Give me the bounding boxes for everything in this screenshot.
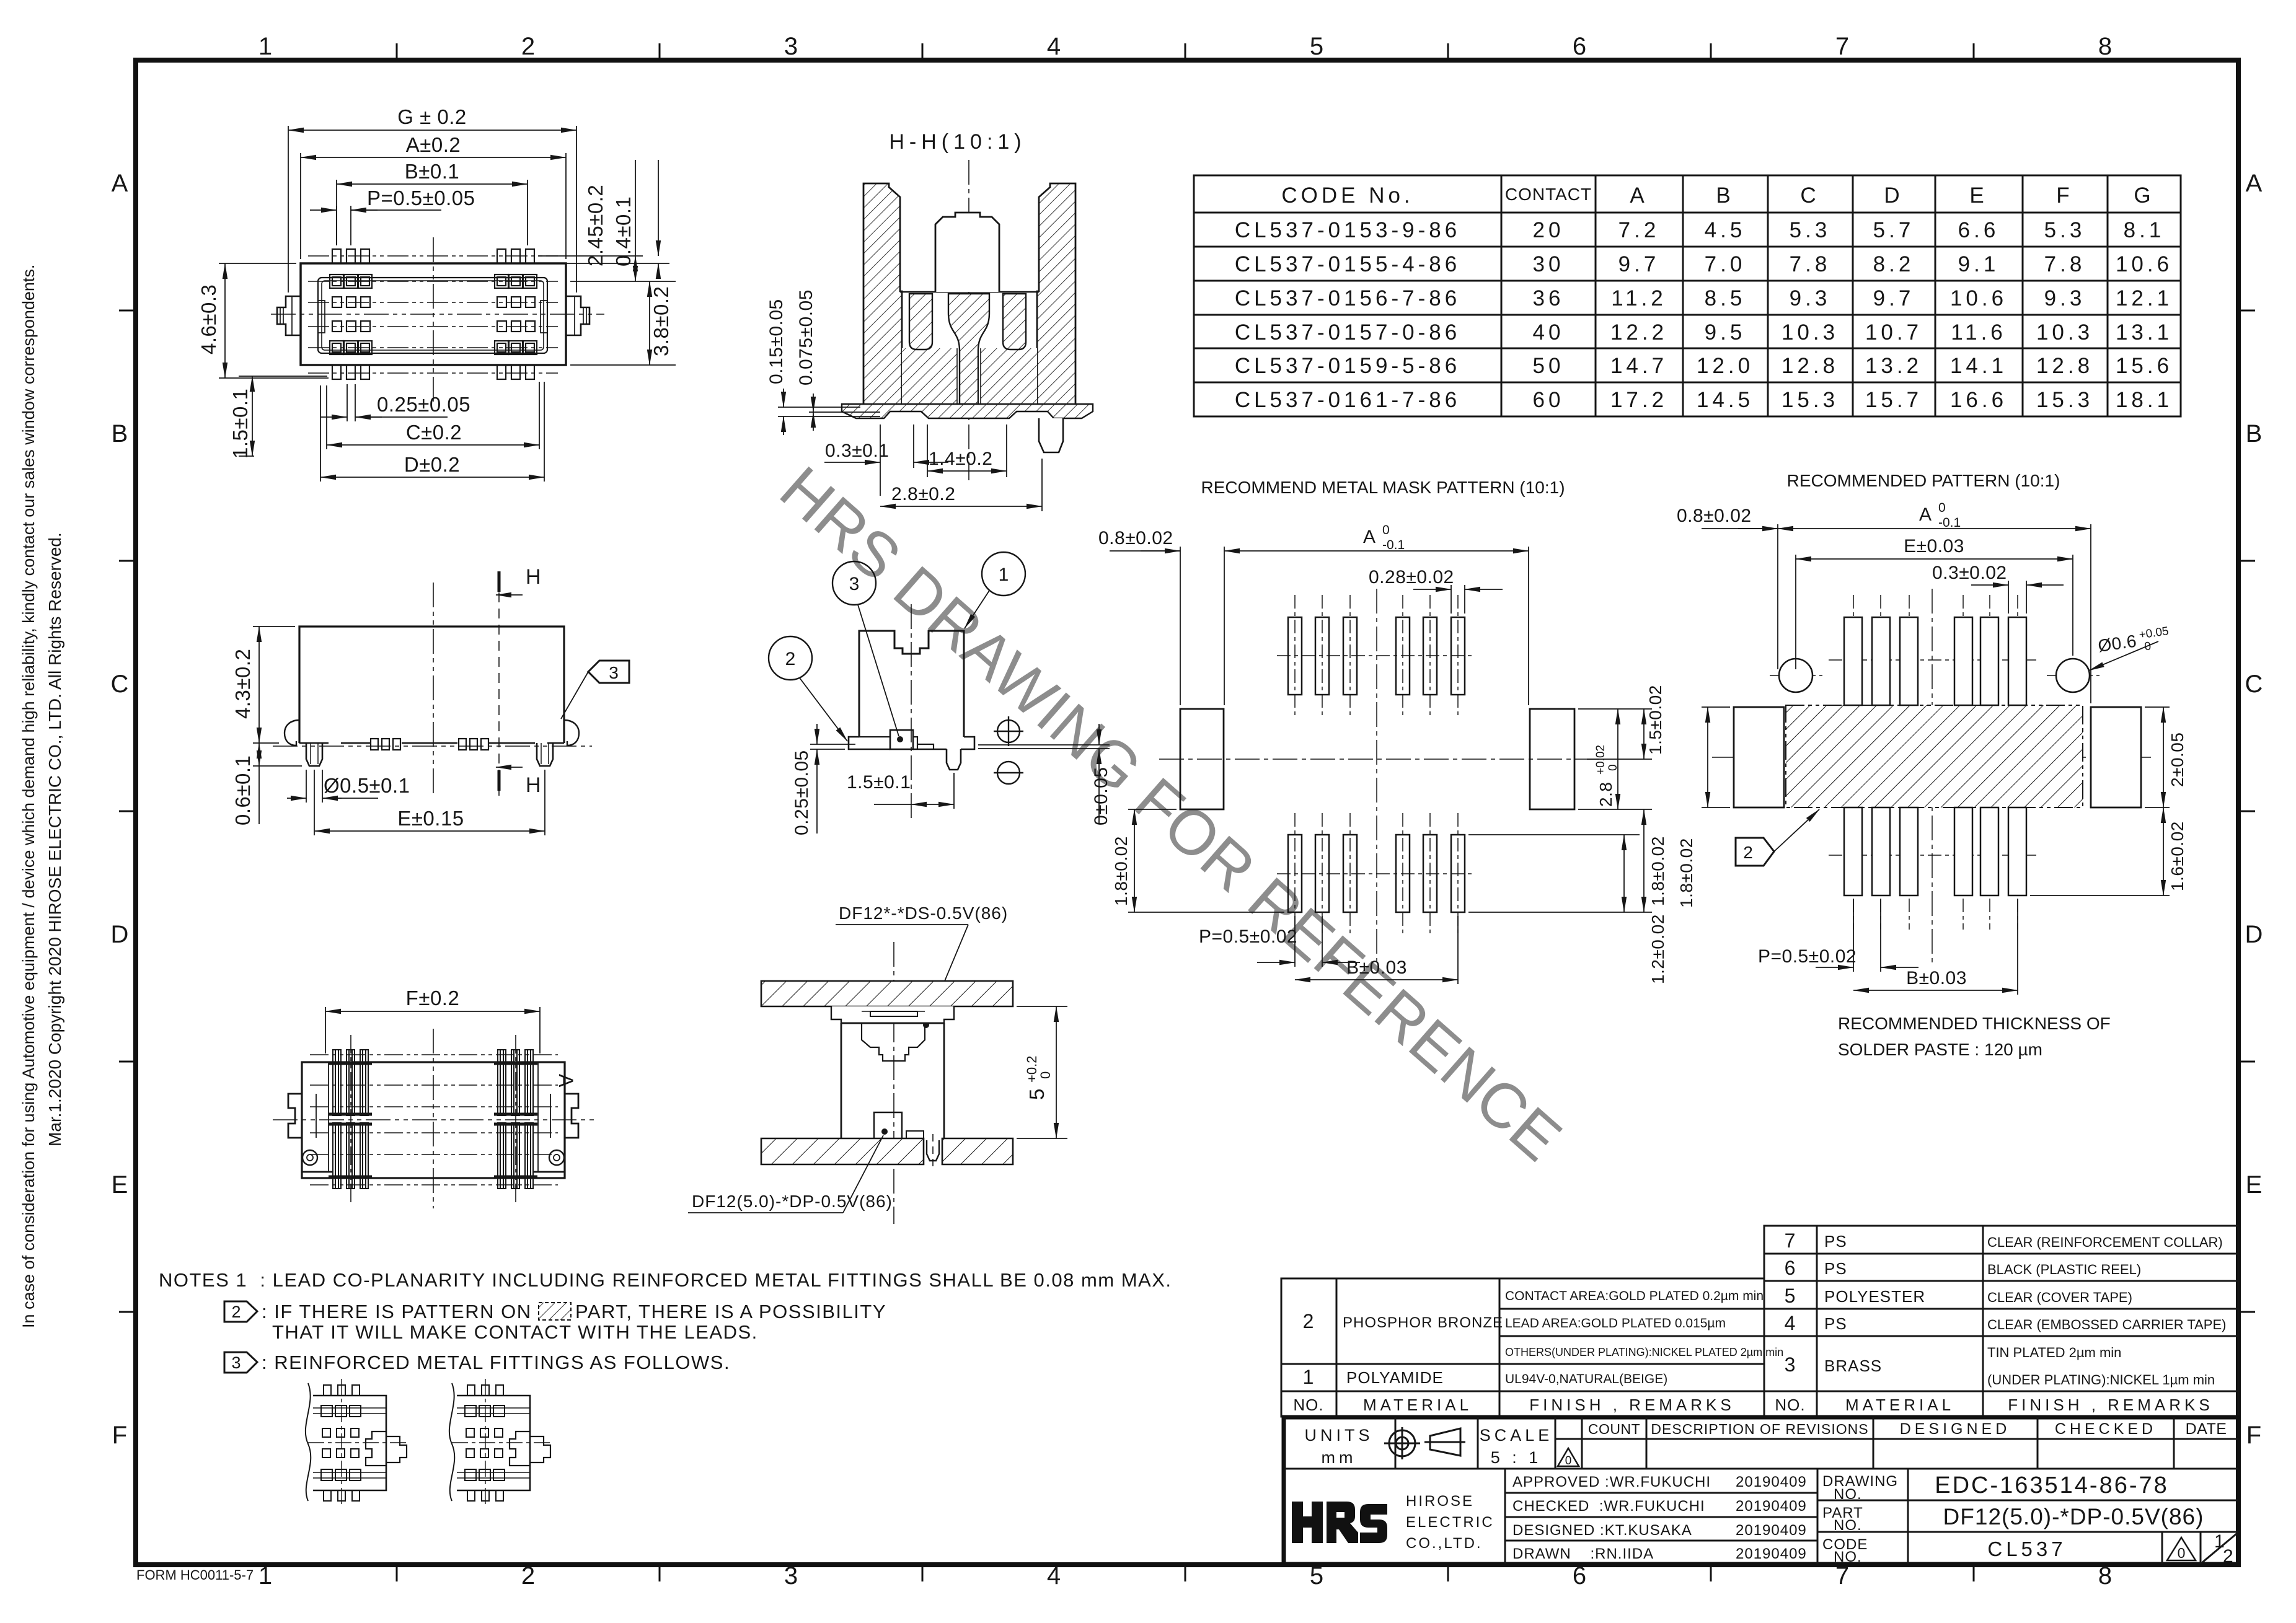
svg-text:NO.: NO. bbox=[1775, 1396, 1805, 1414]
svg-text:4.5: 4.5 bbox=[1705, 218, 1746, 242]
svg-text:2: 2 bbox=[2223, 1546, 2233, 1567]
svg-text:0.075±0.05: 0.075±0.05 bbox=[796, 289, 816, 385]
svg-text:DESCRIPTION OF REVISIONS: DESCRIPTION OF REVISIONS bbox=[1651, 1421, 1868, 1437]
svg-text:F: F bbox=[2246, 1422, 2261, 1449]
svg-text:CL537: CL537 bbox=[1987, 1537, 2066, 1560]
svg-text:0: 0 bbox=[2178, 1545, 2186, 1561]
svg-text:1: 1 bbox=[258, 1562, 272, 1590]
svg-text:6.6: 6.6 bbox=[1958, 218, 2000, 242]
svg-text:B: B bbox=[112, 420, 128, 447]
svg-text:6: 6 bbox=[1785, 1257, 1796, 1279]
svg-text:4.3±0.2: 4.3±0.2 bbox=[231, 649, 254, 719]
svg-text:7: 7 bbox=[1785, 1229, 1796, 1252]
svg-text:CODE No.: CODE No. bbox=[1281, 183, 1413, 208]
svg-text:D: D bbox=[111, 921, 129, 948]
svg-text:2: 2 bbox=[1743, 843, 1753, 862]
svg-text:FINISH , REMARKS: FINISH , REMARKS bbox=[2008, 1396, 2213, 1414]
svg-text:6: 6 bbox=[1573, 33, 1586, 60]
svg-text:DF12(5.0)-*DP-0.5V(86): DF12(5.0)-*DP-0.5V(86) bbox=[692, 1192, 893, 1211]
svg-text:C: C bbox=[1800, 183, 1819, 208]
svg-text:DESIGNED :KT.KUSAKA: DESIGNED :KT.KUSAKA bbox=[1512, 1522, 1692, 1539]
svg-text:CLEAR (EMBOSSED CARRIER TAPE): CLEAR (EMBOSSED CARRIER TAPE) bbox=[1987, 1317, 2226, 1332]
svg-text:Mar.1.2020 Copyright 2020 HIRO: Mar.1.2020 Copyright 2020 HIROSE ELECTRI… bbox=[45, 532, 64, 1146]
svg-text:15.3: 15.3 bbox=[1782, 388, 1839, 412]
svg-text:2.8: 2.8 bbox=[1596, 782, 1615, 807]
svg-text:A: A bbox=[1363, 527, 1376, 547]
svg-text:1.8±0.02: 1.8±0.02 bbox=[1111, 836, 1131, 906]
svg-text:SCALE: SCALE bbox=[1480, 1426, 1553, 1445]
svg-text:9.5: 9.5 bbox=[1705, 320, 1746, 345]
svg-text:NO.: NO. bbox=[1834, 1517, 1862, 1534]
svg-text:ELECTRIC: ELECTRIC bbox=[1406, 1514, 1495, 1531]
svg-text:LEAD AREA:GOLD PLATED 0.015µm: LEAD AREA:GOLD PLATED 0.015µm bbox=[1505, 1316, 1726, 1331]
svg-text:14.5: 14.5 bbox=[1697, 388, 1754, 412]
svg-text:4: 4 bbox=[1785, 1312, 1796, 1334]
svg-text:1.4±0.2: 1.4±0.2 bbox=[929, 449, 992, 469]
svg-text:(UNDER PLATING):NICKEL 1µm min: (UNDER PLATING):NICKEL 1µm min bbox=[1987, 1372, 2215, 1388]
svg-text:2: 2 bbox=[1303, 1310, 1315, 1332]
svg-text:BRASS: BRASS bbox=[1824, 1357, 1882, 1375]
svg-text:CL537-0155-4-86: CL537-0155-4-86 bbox=[1235, 252, 1460, 276]
svg-text:CL537-0156-7-86: CL537-0156-7-86 bbox=[1235, 286, 1460, 310]
svg-text:CHECKED: CHECKED bbox=[2055, 1420, 2157, 1438]
svg-text:9.7: 9.7 bbox=[1873, 286, 1915, 310]
svg-text:PHOSPHOR BRONZE: PHOSPHOR BRONZE bbox=[1343, 1314, 1503, 1331]
svg-text:CONTACT: CONTACT bbox=[1505, 185, 1592, 204]
svg-text:B: B bbox=[2246, 420, 2263, 447]
svg-text:D: D bbox=[2245, 921, 2263, 948]
svg-text:1.8±0.02: 1.8±0.02 bbox=[1677, 838, 1696, 908]
svg-text:F: F bbox=[112, 1422, 127, 1449]
svg-text:12.2: 12.2 bbox=[1610, 320, 1667, 345]
svg-text:13.1: 13.1 bbox=[2116, 320, 2173, 345]
svg-text:PS: PS bbox=[1824, 1259, 1847, 1278]
svg-text:0.8±0.02: 0.8±0.02 bbox=[1098, 528, 1173, 548]
svg-text:20190409: 20190409 bbox=[1736, 1498, 1807, 1515]
svg-text:7: 7 bbox=[1835, 1562, 1849, 1590]
svg-text:E: E bbox=[2246, 1171, 2263, 1199]
svg-text:3: 3 bbox=[1785, 1353, 1796, 1376]
svg-text:G ± 0.2: G ± 0.2 bbox=[397, 105, 467, 128]
svg-text:H-H(10:1): H-H(10:1) bbox=[889, 130, 1026, 154]
svg-text:UL94V-0,NATURAL(BEIGE): UL94V-0,NATURAL(BEIGE) bbox=[1505, 1372, 1667, 1386]
svg-text:9.3: 9.3 bbox=[1790, 286, 1831, 310]
svg-text:0.25±0.05: 0.25±0.05 bbox=[792, 750, 812, 835]
svg-text:A: A bbox=[2246, 170, 2263, 197]
svg-text:DRAWN :RN.IIDA: DRAWN :RN.IIDA bbox=[1512, 1546, 1654, 1562]
svg-text:5.3: 5.3 bbox=[2044, 218, 2086, 242]
svg-text:20190409: 20190409 bbox=[1736, 1522, 1807, 1539]
svg-text:0.6±0.1: 0.6±0.1 bbox=[231, 755, 254, 825]
svg-text:10.6: 10.6 bbox=[1950, 286, 2007, 310]
svg-text:15.3: 15.3 bbox=[2036, 388, 2093, 412]
svg-text:1.2±0.02: 1.2±0.02 bbox=[1648, 914, 1667, 984]
svg-text:FORM HC0011-5-7: FORM HC0011-5-7 bbox=[136, 1567, 254, 1583]
svg-text:15.6: 15.6 bbox=[2116, 354, 2173, 378]
svg-text:mm: mm bbox=[1322, 1448, 1357, 1467]
svg-text:12.0: 12.0 bbox=[1697, 354, 1754, 378]
svg-text:9.3: 9.3 bbox=[2044, 286, 2086, 310]
svg-text:RECOMMEND METAL MASK PATTERN (: RECOMMEND METAL MASK PATTERN (10:1) bbox=[1201, 478, 1565, 497]
svg-text:2: 2 bbox=[521, 33, 535, 60]
svg-text:5.3: 5.3 bbox=[1790, 218, 1831, 242]
svg-text:11.2: 11.2 bbox=[1611, 286, 1667, 310]
svg-text:In case of consideration for u: In case of consideration for using Autom… bbox=[19, 265, 38, 1328]
svg-text:PS: PS bbox=[1824, 1314, 1847, 1333]
svg-text:MATERIAL: MATERIAL bbox=[1845, 1396, 1954, 1414]
svg-text:P=0.5±0.02: P=0.5±0.02 bbox=[1199, 926, 1297, 947]
svg-text:NO.: NO. bbox=[1293, 1396, 1323, 1414]
svg-text:C: C bbox=[2245, 671, 2263, 698]
svg-text:DESIGNED: DESIGNED bbox=[1900, 1420, 2011, 1438]
svg-text:A: A bbox=[1919, 504, 1932, 525]
svg-text:4.6±0.3: 4.6±0.3 bbox=[197, 284, 220, 354]
svg-text:2.45±0.2: 2.45±0.2 bbox=[584, 185, 607, 266]
svg-text:PART, THERE IS A POSSIBILITY: PART, THERE IS A POSSIBILITY bbox=[575, 1301, 886, 1322]
svg-text:5: 5 bbox=[1025, 1088, 1048, 1100]
svg-text:MATERIAL: MATERIAL bbox=[1363, 1396, 1472, 1414]
svg-text:17.2: 17.2 bbox=[1610, 388, 1667, 412]
svg-text:3: 3 bbox=[231, 1353, 241, 1372]
svg-text:HIROSE: HIROSE bbox=[1406, 1493, 1474, 1510]
svg-text:7: 7 bbox=[1835, 33, 1849, 60]
svg-text:THAT IT WILL MAKE CONTACT WITH: THAT IT WILL MAKE CONTACT WITH THE LEADS… bbox=[272, 1321, 758, 1343]
svg-text:C±0.2: C±0.2 bbox=[406, 421, 462, 444]
svg-text:60: 60 bbox=[1533, 388, 1565, 412]
svg-text:40: 40 bbox=[1533, 320, 1565, 345]
svg-text:12.1: 12.1 bbox=[2116, 286, 2173, 310]
svg-text:E: E bbox=[1969, 183, 1987, 208]
svg-text:1.6±0.02: 1.6±0.02 bbox=[2168, 821, 2187, 891]
svg-text:0±0.05: 0±0.05 bbox=[1091, 767, 1111, 825]
svg-text:EDC-163514-86-78: EDC-163514-86-78 bbox=[1935, 1472, 2169, 1498]
svg-text:11.6: 11.6 bbox=[1951, 320, 2007, 345]
svg-text:8: 8 bbox=[2098, 1562, 2112, 1590]
svg-text:7.0: 7.0 bbox=[1705, 252, 1746, 276]
svg-text:B: B bbox=[1716, 183, 1734, 208]
svg-text:3: 3 bbox=[784, 33, 798, 60]
svg-text:1.5±0.1: 1.5±0.1 bbox=[847, 772, 911, 793]
svg-text:2: 2 bbox=[521, 1562, 535, 1590]
svg-text:8.2: 8.2 bbox=[1873, 252, 1915, 276]
svg-text:-0.1: -0.1 bbox=[1938, 516, 1961, 530]
svg-text:3: 3 bbox=[609, 663, 619, 682]
svg-text:8.1: 8.1 bbox=[2124, 218, 2165, 242]
svg-text:P=0.5±0.05: P=0.5±0.05 bbox=[367, 187, 475, 209]
svg-text:5.7: 5.7 bbox=[1873, 218, 1915, 242]
svg-text:12.8: 12.8 bbox=[2036, 354, 2093, 378]
svg-text:TIN PLATED 2µm min: TIN PLATED 2µm min bbox=[1987, 1345, 2121, 1360]
svg-text:1.8±0.02: 1.8±0.02 bbox=[1648, 836, 1667, 906]
svg-text:0.25±0.05: 0.25±0.05 bbox=[377, 393, 470, 416]
svg-text:COUNT: COUNT bbox=[1588, 1421, 1640, 1437]
svg-text:CHECKED :WR.FUKUCHI: CHECKED :WR.FUKUCHI bbox=[1512, 1498, 1705, 1515]
svg-text:E: E bbox=[112, 1171, 128, 1199]
svg-text:50: 50 bbox=[1533, 354, 1565, 378]
svg-text:0.3±0.1: 0.3±0.1 bbox=[825, 441, 889, 461]
svg-text:CO.,LTD.: CO.,LTD. bbox=[1406, 1535, 1483, 1552]
svg-text:NOTES 1 : LEAD CO-PLANARITY I: NOTES 1 : LEAD CO-PLANARITY INCLUDING RE… bbox=[159, 1269, 1172, 1291]
svg-text:0.15±0.05: 0.15±0.05 bbox=[766, 299, 787, 384]
svg-text:D: D bbox=[1884, 183, 1903, 208]
svg-text:B±0.1: B±0.1 bbox=[405, 160, 460, 183]
svg-text:H: H bbox=[526, 565, 541, 589]
svg-text:FINISH , REMARKS: FINISH , REMARKS bbox=[1529, 1396, 1734, 1414]
svg-text:15.7: 15.7 bbox=[1865, 388, 1922, 412]
svg-text:: IF THERE IS PATTERN ON: : IF THERE IS PATTERN ON bbox=[262, 1301, 532, 1322]
svg-text:A: A bbox=[555, 1074, 577, 1088]
svg-text:E±0.03: E±0.03 bbox=[1904, 536, 1964, 556]
svg-text:C: C bbox=[111, 671, 129, 698]
svg-text:36: 36 bbox=[1533, 286, 1565, 310]
svg-text:7.8: 7.8 bbox=[1790, 252, 1831, 276]
svg-text:8.5: 8.5 bbox=[1705, 286, 1746, 310]
svg-text:3.8±0.2: 3.8±0.2 bbox=[650, 286, 673, 356]
svg-text:8: 8 bbox=[2098, 33, 2112, 60]
svg-text:3: 3 bbox=[784, 1562, 798, 1590]
svg-text:0.28±0.02: 0.28±0.02 bbox=[1369, 567, 1454, 587]
svg-text:POLYAMIDE: POLYAMIDE bbox=[1346, 1368, 1444, 1387]
svg-text:4: 4 bbox=[1047, 33, 1061, 60]
svg-text:BLACK (PLASTIC REEL): BLACK (PLASTIC REEL) bbox=[1987, 1262, 2141, 1277]
svg-text:P=0.5±0.02: P=0.5±0.02 bbox=[1758, 946, 1857, 967]
svg-text:1: 1 bbox=[258, 33, 272, 60]
svg-text:6: 6 bbox=[1573, 1562, 1586, 1590]
svg-text:0: 0 bbox=[1938, 501, 1946, 515]
svg-text:5: 5 bbox=[1785, 1285, 1796, 1307]
svg-text:0: 0 bbox=[1382, 523, 1390, 537]
svg-text:CL537-0159-5-86: CL537-0159-5-86 bbox=[1235, 354, 1460, 378]
svg-text:APPROVED :WR.FUKUCHI: APPROVED :WR.FUKUCHI bbox=[1512, 1474, 1711, 1490]
svg-text:NO.: NO. bbox=[1834, 1549, 1862, 1565]
svg-text:RECOMMENDED PATTERN (10:1): RECOMMENDED PATTERN (10:1) bbox=[1787, 471, 2060, 490]
svg-text:CLEAR (COVER TAPE): CLEAR (COVER TAPE) bbox=[1987, 1290, 2132, 1305]
svg-text:POLYESTER: POLYESTER bbox=[1824, 1287, 1925, 1306]
svg-text:0: 0 bbox=[1038, 1071, 1053, 1079]
svg-text:SOLDER PASTE : 120 µm: SOLDER PASTE : 120 µm bbox=[1838, 1040, 2042, 1059]
svg-text:7.2: 7.2 bbox=[1618, 218, 1660, 242]
svg-text:NO.: NO. bbox=[1834, 1486, 1862, 1503]
svg-text:OTHERS(UNDER PLATING):NICKEL P: OTHERS(UNDER PLATING):NICKEL PLATED 2µm … bbox=[1505, 1346, 1783, 1358]
svg-text:14.1: 14.1 bbox=[1950, 354, 2007, 378]
svg-text:1: 1 bbox=[999, 565, 1009, 585]
svg-text:4: 4 bbox=[1047, 1562, 1061, 1590]
svg-text:CL537-0161-7-86: CL537-0161-7-86 bbox=[1235, 388, 1460, 412]
svg-text:B±0.03: B±0.03 bbox=[1346, 957, 1407, 978]
svg-text:20190409: 20190409 bbox=[1736, 1474, 1807, 1490]
svg-text:1: 1 bbox=[1303, 1366, 1315, 1388]
svg-text:10.3: 10.3 bbox=[2036, 320, 2093, 345]
svg-text:CLEAR (REINFORCEMENT COLLAR): CLEAR (REINFORCEMENT COLLAR) bbox=[1987, 1234, 2223, 1250]
svg-text:CL537-0153-9-86: CL537-0153-9-86 bbox=[1235, 218, 1460, 242]
svg-text:+0.02: +0.02 bbox=[1594, 745, 1607, 775]
svg-text:10.6: 10.6 bbox=[2116, 252, 2173, 276]
svg-text:-0.1: -0.1 bbox=[1382, 538, 1405, 552]
svg-text:0: 0 bbox=[1607, 764, 1620, 771]
svg-text:2: 2 bbox=[785, 649, 796, 669]
svg-text:CONTACT AREA:GOLD PLATED 0.2µm: CONTACT AREA:GOLD PLATED 0.2µm min bbox=[1505, 1289, 1764, 1303]
svg-text:3: 3 bbox=[849, 574, 860, 594]
svg-text:0.3±0.02: 0.3±0.02 bbox=[1932, 563, 2007, 583]
svg-text:Ø0.5±0.1: Ø0.5±0.1 bbox=[324, 774, 410, 797]
svg-text:20: 20 bbox=[1533, 218, 1565, 242]
svg-text:B±0.03: B±0.03 bbox=[1906, 968, 1967, 988]
svg-text:A±0.2: A±0.2 bbox=[406, 133, 461, 156]
svg-text:DATE: DATE bbox=[2186, 1420, 2227, 1438]
svg-text:10.7: 10.7 bbox=[1865, 320, 1922, 345]
svg-text:H: H bbox=[526, 773, 541, 797]
svg-text:RECOMMENDED THICKNESS OF: RECOMMENDED THICKNESS OF bbox=[1838, 1014, 2111, 1033]
svg-text:2.8±0.2: 2.8±0.2 bbox=[891, 484, 955, 504]
svg-text:A: A bbox=[112, 170, 128, 197]
svg-text:1.5±0.02: 1.5±0.02 bbox=[1646, 685, 1665, 755]
svg-text:0.4±0.1: 0.4±0.1 bbox=[612, 196, 635, 266]
svg-text:CL537-0157-0-86: CL537-0157-0-86 bbox=[1235, 320, 1460, 345]
svg-text:F±0.2: F±0.2 bbox=[406, 987, 460, 1009]
svg-text:E±0.15: E±0.15 bbox=[397, 807, 464, 830]
svg-text:: REINFORCED METAL FITTINGS AS: : REINFORCED METAL FITTINGS AS FOLLOWS. bbox=[262, 1352, 730, 1373]
svg-text:12.8: 12.8 bbox=[1782, 354, 1839, 378]
svg-text:5 : 1: 5 : 1 bbox=[1491, 1448, 1542, 1467]
svg-text:20190409: 20190409 bbox=[1736, 1546, 1807, 1562]
svg-text:DF12(5.0)-*DP-0.5V(86): DF12(5.0)-*DP-0.5V(86) bbox=[1943, 1504, 2204, 1529]
svg-text:2: 2 bbox=[231, 1303, 241, 1321]
svg-text:A: A bbox=[1630, 183, 1648, 208]
svg-text:PS: PS bbox=[1824, 1232, 1847, 1251]
svg-text:9.7: 9.7 bbox=[1618, 252, 1660, 276]
svg-text:G: G bbox=[2134, 183, 2154, 208]
svg-text:14.7: 14.7 bbox=[1610, 354, 1667, 378]
svg-text:16.6: 16.6 bbox=[1950, 388, 2007, 412]
svg-text:7.8: 7.8 bbox=[2044, 252, 2086, 276]
svg-text:10.3: 10.3 bbox=[1782, 320, 1839, 345]
svg-text:13.2: 13.2 bbox=[1865, 354, 1922, 378]
svg-text:DF12*-*DS-0.5V(86): DF12*-*DS-0.5V(86) bbox=[839, 904, 1008, 923]
svg-text:1.5±0.1: 1.5±0.1 bbox=[229, 389, 252, 459]
svg-text:0.8±0.02: 0.8±0.02 bbox=[1677, 506, 1752, 526]
svg-text:D±0.2: D±0.2 bbox=[404, 453, 460, 476]
svg-text:F: F bbox=[2056, 183, 2073, 208]
svg-text:0: 0 bbox=[1565, 1454, 1572, 1467]
svg-text:UNITS: UNITS bbox=[1305, 1426, 1374, 1445]
svg-text:2±0.05: 2±0.05 bbox=[2168, 732, 2187, 787]
svg-text:5: 5 bbox=[1310, 33, 1323, 60]
svg-text:5: 5 bbox=[1310, 1562, 1323, 1590]
svg-text:30: 30 bbox=[1533, 252, 1565, 276]
svg-text:18.1: 18.1 bbox=[2116, 388, 2173, 412]
svg-text:9.1: 9.1 bbox=[1958, 252, 2000, 276]
